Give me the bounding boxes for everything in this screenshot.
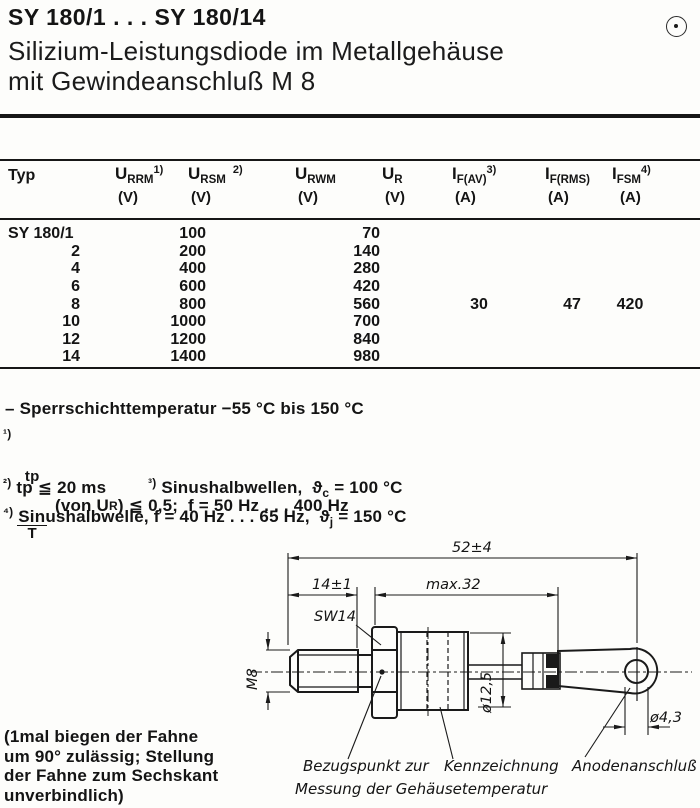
unit-ursm: (V)	[191, 189, 243, 206]
bending-note-line3: der Fahne zum Sechskant	[4, 766, 218, 786]
col-header-urwm: URWM (V)	[295, 164, 336, 206]
bending-note-line1: (1mal biegen der Fahne	[4, 727, 218, 747]
cell-typ: 2	[0, 243, 80, 261]
col-header-urrm: URRM1) (V)	[115, 164, 163, 206]
table-row: 2200140	[0, 243, 700, 261]
col-header-ifsm: IFSM4) (A)	[612, 164, 651, 206]
table-row: 141400980	[0, 348, 700, 366]
bending-note-line4: unverbindlich)	[4, 786, 218, 806]
subtitle-line-2: mit Gewindeanschluß M 8	[8, 66, 504, 96]
cell-urwm: 420	[284, 278, 380, 296]
table-header-rule	[0, 218, 700, 220]
bending-note-line2: um 90° zulässig; Stellung	[4, 747, 218, 767]
datasheet-page: SY 180/1 . . . SY 180/14 Silizium-Leistu…	[0, 0, 700, 808]
table-bottom-rule	[0, 367, 700, 369]
symbol-ifav: IF(AV)3)	[452, 164, 496, 186]
cell-typ: SY 180/1	[8, 225, 103, 243]
unit-ur: (V)	[385, 189, 405, 206]
cell-ifrms: 47	[544, 296, 600, 314]
cell-typ: 14	[0, 348, 80, 366]
cell-typ: 10	[0, 313, 80, 331]
cell-urrm: 400	[110, 260, 206, 278]
col-header-ifav: IF(AV)3) (A)	[452, 164, 496, 206]
table-row: SY 180/110070	[0, 225, 700, 243]
dimension-52-label: 52±4	[452, 540, 492, 556]
dimension-drawing: 52±4 14±1 max.32 SW14 M8 ø12,5 ø4,3 Bezu…	[240, 535, 700, 808]
footnote-3-text: Sinushalbwellen,	[156, 478, 312, 497]
footnote-3: ³) Sinushalbwellen, ϑc = 100 °C	[148, 476, 403, 500]
footnote-4-text: Sinushalbwelle, f = 40 Hz . . . 65 Hz,	[13, 507, 319, 526]
cell-ifav: 30	[451, 296, 507, 314]
table-top-rule	[0, 159, 700, 161]
table-row: 4400280	[0, 260, 700, 278]
col-header-typ: Typ	[8, 167, 35, 185]
ratings-table-body: SY 180/110070 2200140 4400280 6600420 88…	[0, 225, 700, 366]
symbol-ursm: URSM2)	[188, 164, 243, 186]
footnote-2-text: tp ≦ 20 ms	[11, 478, 106, 497]
cell-urrm: 600	[110, 278, 206, 296]
page-title: SY 180/1 . . . SY 180/14	[8, 4, 266, 31]
cell-urwm: 700	[284, 313, 380, 331]
page-subtitle: Silizium-Leistungsdiode im Metallgehäuse…	[8, 36, 504, 96]
cell-urrm: 1400	[110, 348, 206, 366]
cell-urrm: 1200	[110, 331, 206, 349]
diameter-43-label: ø4,3	[649, 710, 682, 726]
diode-body	[397, 632, 468, 710]
threaded-stud	[290, 650, 358, 692]
table-row: 88005603047420	[0, 296, 700, 314]
anode-connection-label: Anodenanschluß	[571, 757, 697, 775]
unit-urrm: (V)	[118, 189, 163, 206]
table-row: 101000700	[0, 313, 700, 331]
unit-ifav: (A)	[455, 189, 496, 206]
reference-point-label-line1: Bezugspunkt zur	[303, 757, 429, 775]
cell-urrm: 200	[110, 243, 206, 261]
cell-ifsm: 420	[602, 296, 658, 314]
theta-symbol: ϑ	[320, 507, 330, 526]
thread-m8-label: M8	[245, 668, 261, 690]
col-header-ifrms: IF(RMS) (A)	[545, 164, 590, 206]
circle-dot-center	[674, 24, 678, 28]
cell-urrm: 100	[110, 225, 206, 243]
theta-symbol: ϑ	[312, 478, 322, 497]
table-row: 121200840	[0, 331, 700, 349]
unit-urwm: (V)	[298, 189, 336, 206]
cell-typ: 12	[0, 331, 80, 349]
cell-urwm: 280	[284, 260, 380, 278]
cell-urwm: 980	[284, 348, 380, 366]
footnote-3-rest: = 100 °C	[329, 478, 402, 497]
footnote-2: ²) tp ≦ 20 ms	[3, 476, 106, 498]
cell-urrm: 800	[110, 296, 206, 314]
footnote-4-rest: = 150 °C	[333, 507, 406, 526]
unit-ifrms: (A)	[548, 189, 590, 206]
footnote-4-marker: ⁴)	[3, 505, 13, 519]
bending-note: (1mal biegen der Fahne um 90° zulässig; …	[4, 727, 218, 805]
symbol-ifsm: IFSM4)	[612, 164, 651, 186]
dimension-14-label: 14±1	[312, 577, 352, 593]
cell-typ: 6	[0, 278, 80, 296]
cell-urwm: 840	[284, 331, 380, 349]
diameter-125-label: ø12,5	[479, 672, 495, 714]
symbol-ifrms: IF(RMS)	[545, 164, 590, 186]
symbol-urwm: URWM	[295, 164, 336, 186]
anode-lug	[558, 649, 657, 694]
junction-temperature-note: – Sperrschichttemperatur −55 °C bis 150 …	[5, 399, 364, 419]
table-row: 6600420	[0, 278, 700, 296]
cell-urwm: 70	[284, 225, 380, 243]
dimension-max32-label: max.32	[426, 577, 481, 593]
col-header-ursm: URSM2) (V)	[188, 164, 243, 206]
unit-ifsm: (A)	[620, 189, 651, 206]
cell-typ: 4	[0, 260, 80, 278]
col-header-ur: UR (V)	[382, 164, 405, 206]
symbol-ur: UR	[382, 164, 405, 186]
subtitle-line-1: Silizium-Leistungsdiode im Metallgehäuse	[8, 36, 504, 66]
footnote-1-marker: ¹)	[3, 427, 11, 441]
footnote-4: ⁴) Sinushalbwelle, f = 40 Hz . . . 65 Hz…	[3, 505, 407, 529]
cell-urwm: 560	[284, 296, 380, 314]
title-divider-rule	[0, 114, 700, 118]
cell-typ: 8	[0, 296, 80, 314]
circle-dot-icon	[666, 16, 687, 37]
cell-urwm: 140	[284, 243, 380, 261]
wrench-size-label: SW14	[314, 609, 356, 625]
symbol-urrm: URRM1)	[115, 164, 163, 186]
marking-label: Kennzeichnung	[444, 757, 559, 775]
stud-neck	[358, 655, 372, 687]
reference-point-label-line2: Messung der Gehäusetemperatur	[295, 780, 548, 798]
cell-urrm: 1000	[110, 313, 206, 331]
